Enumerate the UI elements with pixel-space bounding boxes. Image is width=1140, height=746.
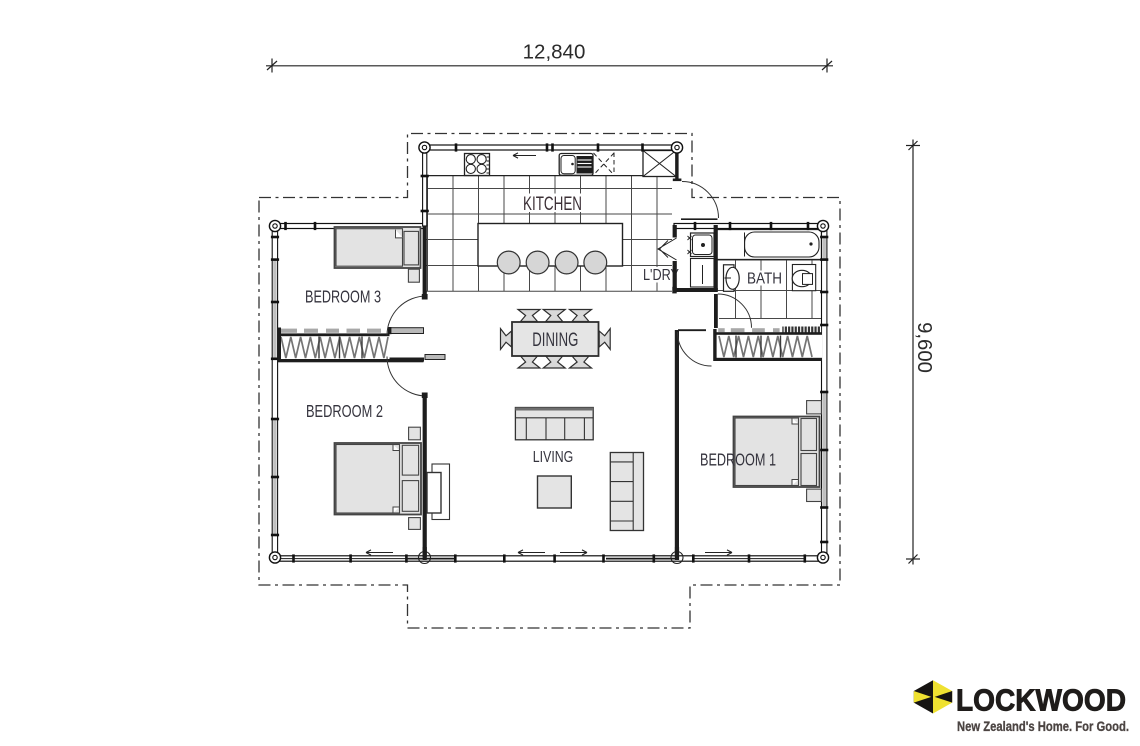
svg-text:LIVING: LIVING [533,449,574,466]
svg-text:New Zealand's Home. For Good.: New Zealand's Home. For Good. [957,719,1129,734]
svg-text:BEDROOM 2: BEDROOM 2 [306,401,383,421]
svg-text:9,600: 9,600 [913,322,935,373]
svg-text:BATH: BATH [747,271,782,288]
svg-text:BEDROOM 3: BEDROOM 3 [305,287,381,307]
svg-text:12,840: 12,840 [523,41,586,64]
svg-text:DINING: DINING [532,329,578,351]
svg-text:KITCHEN: KITCHEN [523,193,582,215]
svg-text:BEDROOM 1: BEDROOM 1 [700,450,776,470]
svg-text:LOCKWOOD: LOCKWOOD [956,682,1126,717]
